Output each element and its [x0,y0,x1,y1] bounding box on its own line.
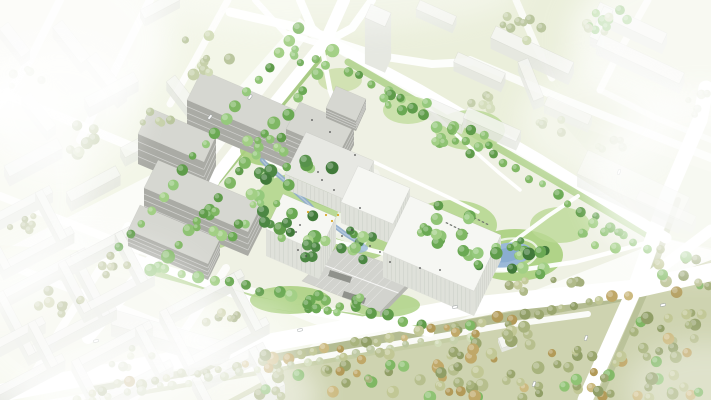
tree [553,189,564,200]
tree [373,338,382,347]
tree [210,276,220,286]
tree [234,219,243,228]
masterplan-figure [0,0,711,400]
tree [182,36,189,43]
tree [273,200,280,207]
person-dot [297,249,299,251]
tree [507,264,517,274]
tree [339,353,347,361]
tree [300,252,310,262]
tree [466,125,476,135]
tree [418,109,429,120]
person-dot [419,267,421,269]
tree [593,386,604,397]
person-dot [305,255,307,257]
tree [266,135,275,144]
tree [465,149,474,158]
tree [346,227,354,235]
tree [414,326,425,337]
tree [225,277,234,286]
tree [274,286,286,298]
tree [607,390,615,398]
tree [189,152,197,160]
tree [512,164,520,172]
tree [282,109,294,121]
tree [574,346,582,354]
tree [485,93,494,102]
tree [327,386,339,398]
tree [600,374,609,383]
tree [506,23,515,32]
tree [486,348,497,359]
person-dot [317,171,319,173]
tree [255,287,264,296]
tree [451,328,460,337]
tree [324,307,332,315]
tree [311,242,321,252]
tree [590,368,598,376]
tree [678,270,689,281]
tree [224,177,236,189]
tree [254,137,261,144]
tree [595,296,604,305]
tree [566,278,576,288]
tree [447,124,456,133]
tree [522,36,531,45]
person-dot [295,231,297,233]
tree [365,376,372,383]
tree [311,304,321,314]
tree [417,338,424,345]
tree [239,157,251,169]
tree [615,351,626,362]
tree [357,355,366,364]
tree [320,236,330,246]
tree [570,302,578,310]
tree [563,362,574,373]
tree [474,260,483,269]
tree [398,317,408,327]
person-dot [329,131,331,133]
tree [267,117,280,130]
tree [591,241,599,249]
tree [383,348,394,359]
tree [298,86,307,95]
tree [500,22,507,29]
tree [384,333,394,343]
tree [241,280,251,290]
tree [333,309,341,317]
tree [126,230,135,239]
tree [431,121,443,133]
tree [282,163,291,172]
tree [205,68,213,76]
tree [265,63,274,72]
tree [199,209,209,219]
tree [697,309,707,319]
tree [316,357,323,364]
tree [486,104,496,114]
tree [209,128,220,139]
tree [366,308,377,319]
tree [353,370,361,378]
tree [246,188,258,200]
person-dot [333,189,335,191]
tree [375,348,385,358]
tree [517,262,529,274]
tree [435,367,446,378]
tree [291,46,299,54]
bench-accent-dot [325,214,327,216]
tree [586,298,593,305]
tree [336,243,346,253]
tree [489,150,498,159]
tree [211,207,220,216]
tree [208,226,218,236]
tree [257,199,264,206]
tree [439,138,448,147]
tree [550,277,556,283]
person-dot [359,207,361,209]
tree [663,333,675,345]
tree [525,339,536,350]
tree [379,94,388,103]
tree [587,351,597,361]
tree [321,61,330,70]
tree [467,99,475,107]
tree [466,380,474,388]
tree [467,343,479,355]
tree [175,241,183,249]
bench-accent-dot [307,211,309,213]
tree [559,381,569,391]
tree [356,293,365,302]
person-dot [321,179,323,181]
tree [558,305,566,313]
tree [296,349,306,359]
tree [255,76,263,84]
tree [350,242,361,253]
tree [402,341,409,348]
tree [283,179,295,191]
haze-blob [520,60,680,180]
tree [492,311,504,323]
tree [159,192,169,202]
tree [278,234,286,242]
tree [188,69,200,81]
person-dot [311,119,313,121]
tree [177,164,188,175]
tree [250,201,257,208]
tree [325,366,333,374]
tree [520,309,531,320]
tree [396,94,404,102]
tree [517,237,524,244]
tree [282,218,292,228]
tree [407,103,418,114]
tree [242,135,253,146]
tree [664,314,673,323]
tree [313,290,324,301]
tree [401,335,408,342]
tree [502,376,511,385]
tree [444,325,450,331]
tree [514,281,523,290]
tree [299,155,311,167]
tree [286,228,295,237]
tree [146,108,154,116]
tree [463,213,474,224]
tree [326,44,339,57]
tree [456,229,468,241]
tree [341,378,350,387]
person-dot [354,154,356,156]
bench-accent-dot [337,214,339,216]
tree [147,206,156,215]
tree [624,291,633,300]
tree [155,117,163,125]
tree [571,374,582,385]
tree [685,321,693,329]
tree [523,248,536,261]
tree [427,324,436,333]
tree [539,180,546,187]
tree [138,220,146,228]
tree [449,336,458,345]
tree [297,59,304,66]
tree [471,366,484,379]
tree [576,207,586,217]
tree [166,116,175,125]
tree [367,80,375,88]
tree [385,360,395,370]
person-dot [439,269,441,271]
campus-masterplan-aerial-rendering [0,0,711,400]
tree [474,142,484,152]
tree [319,343,329,353]
tree [485,142,493,150]
tree [453,362,462,371]
tree [312,55,320,63]
tree [456,386,466,396]
tree [431,137,440,146]
tree [535,389,543,397]
tree [358,255,367,264]
tree [503,12,512,21]
bench-accent-dot [331,220,333,222]
tree [168,180,179,191]
person-dot [379,251,381,253]
tree [480,131,489,140]
tree [304,358,312,366]
tree [694,279,702,287]
tree [336,367,345,376]
tree [252,151,261,160]
tree [505,281,514,290]
tree [434,340,441,347]
tree [202,140,210,148]
tree [285,289,298,302]
tree [600,228,609,237]
tree [536,23,546,33]
tree [260,173,272,185]
tree [553,360,561,368]
tree [398,361,409,372]
tree [344,67,354,77]
tree [445,388,453,396]
tree [477,318,486,327]
tree [462,137,470,145]
tree [224,54,235,65]
tree [357,231,369,243]
tree [521,277,528,284]
person-dot [299,224,301,226]
tree [458,245,470,257]
tree [547,305,557,315]
tree [366,345,375,354]
tree [534,310,544,320]
tree [499,159,508,168]
tree [337,345,344,352]
tree [578,229,587,238]
tree [183,224,195,236]
tree [456,352,464,360]
tree [286,208,298,220]
tree [422,98,432,108]
tree [433,359,441,367]
tree [350,337,359,346]
tree [140,119,146,125]
tree [214,193,223,202]
tree [193,224,201,232]
person-dot [369,245,371,247]
tree [274,48,285,59]
tree [452,138,459,145]
tree [671,286,683,298]
person-dot [389,261,391,263]
tree [257,205,269,217]
tree [203,55,210,62]
tree [525,175,533,183]
tree [385,102,391,108]
tree [277,133,287,143]
person-dot [341,235,343,237]
tree [465,320,475,330]
tree [518,321,530,333]
tree [629,327,638,336]
tree [302,299,312,309]
tree [415,374,426,385]
tree [284,35,296,47]
tree [657,269,668,280]
tree [641,312,654,325]
tree [221,113,233,125]
tree [564,200,571,207]
tree [326,161,339,174]
tree [471,330,479,338]
tree [279,147,289,157]
tree [397,105,407,115]
tree [309,347,317,355]
tree [204,30,215,41]
tree [259,216,270,227]
haze-blob [160,300,300,380]
tree [431,213,443,225]
tree [516,378,524,386]
tree [548,349,556,357]
tree [472,247,484,259]
tree [434,201,444,211]
tree [453,377,464,388]
tree [312,68,324,80]
tree [610,243,621,254]
tree [535,269,545,279]
tree [606,290,618,302]
tree [229,100,241,112]
tree [588,218,598,228]
tree [507,244,514,251]
tree [638,343,649,354]
tree [355,71,363,79]
tree [502,329,513,340]
tree [387,386,399,398]
tree [490,247,503,260]
tree [437,382,445,390]
tree [431,229,442,240]
tree [657,325,665,333]
tree [520,19,527,26]
tree [382,309,394,321]
tree [681,309,691,319]
person-dot [351,229,353,231]
tree [228,232,238,242]
tree [535,246,547,258]
tree [532,361,545,374]
